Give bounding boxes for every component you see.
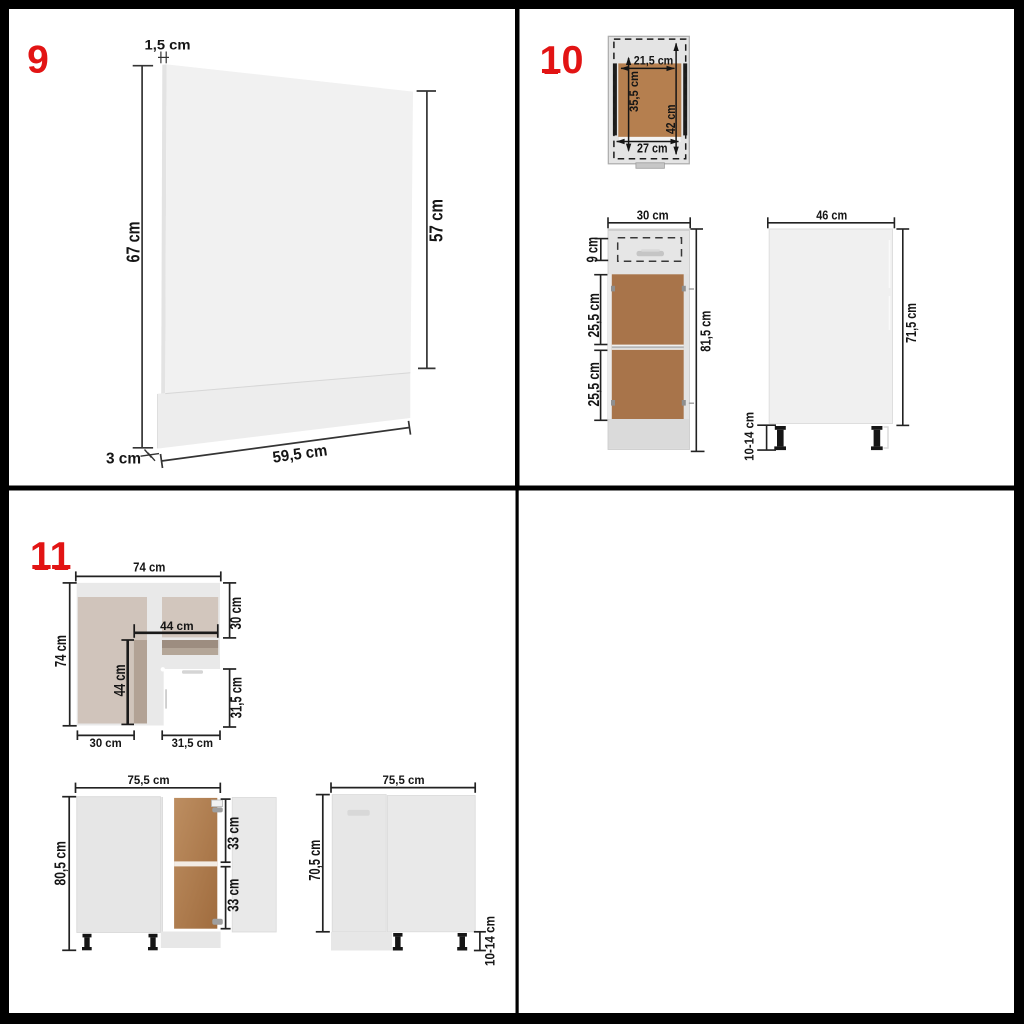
- svg-text:27 cm: 27 cm: [637, 141, 668, 155]
- svg-text:11: 11: [30, 535, 72, 578]
- svg-text:81,5 cm: 81,5 cm: [699, 311, 715, 352]
- svg-text:30 cm: 30 cm: [228, 597, 245, 630]
- svg-text:10-14 cm: 10-14 cm: [742, 412, 757, 461]
- svg-text:35,5 cm: 35,5 cm: [629, 71, 641, 112]
- svg-text:74 cm: 74 cm: [133, 560, 165, 575]
- svg-text:30 cm: 30 cm: [90, 736, 122, 750]
- svg-text:74 cm: 74 cm: [53, 635, 70, 667]
- svg-text:31,5 cm: 31,5 cm: [229, 677, 246, 718]
- svg-text:80,5 cm: 80,5 cm: [53, 841, 70, 886]
- svg-text:25,5 cm: 25,5 cm: [586, 293, 603, 337]
- svg-text:9: 9: [27, 39, 49, 82]
- svg-text:70,5 cm: 70,5 cm: [307, 840, 324, 881]
- svg-text:75,5 cm: 75,5 cm: [383, 773, 425, 787]
- svg-text:57 cm: 57 cm: [426, 199, 446, 242]
- svg-text:31,5 cm: 31,5 cm: [172, 736, 213, 750]
- svg-text:10: 10: [540, 39, 584, 82]
- svg-text:9 cm: 9 cm: [585, 237, 602, 263]
- svg-text:10-14 cm: 10-14 cm: [483, 916, 498, 966]
- svg-text:44 cm: 44 cm: [160, 619, 194, 633]
- svg-text:33 cm: 33 cm: [226, 817, 243, 850]
- svg-text:33 cm: 33 cm: [226, 879, 243, 912]
- svg-text:30 cm: 30 cm: [637, 208, 669, 223]
- svg-text:44 cm: 44 cm: [112, 664, 129, 696]
- svg-text:3 cm: 3 cm: [106, 451, 141, 468]
- svg-text:71,5 cm: 71,5 cm: [904, 303, 920, 343]
- svg-text:21,5 cm: 21,5 cm: [634, 55, 674, 67]
- svg-text:75,5 cm: 75,5 cm: [127, 773, 169, 787]
- svg-text:46 cm: 46 cm: [816, 208, 847, 223]
- svg-text:25,5 cm: 25,5 cm: [586, 362, 603, 406]
- svg-text:42 cm: 42 cm: [664, 105, 678, 135]
- svg-text:1,5 cm: 1,5 cm: [145, 36, 191, 52]
- svg-text:67 cm: 67 cm: [124, 222, 144, 263]
